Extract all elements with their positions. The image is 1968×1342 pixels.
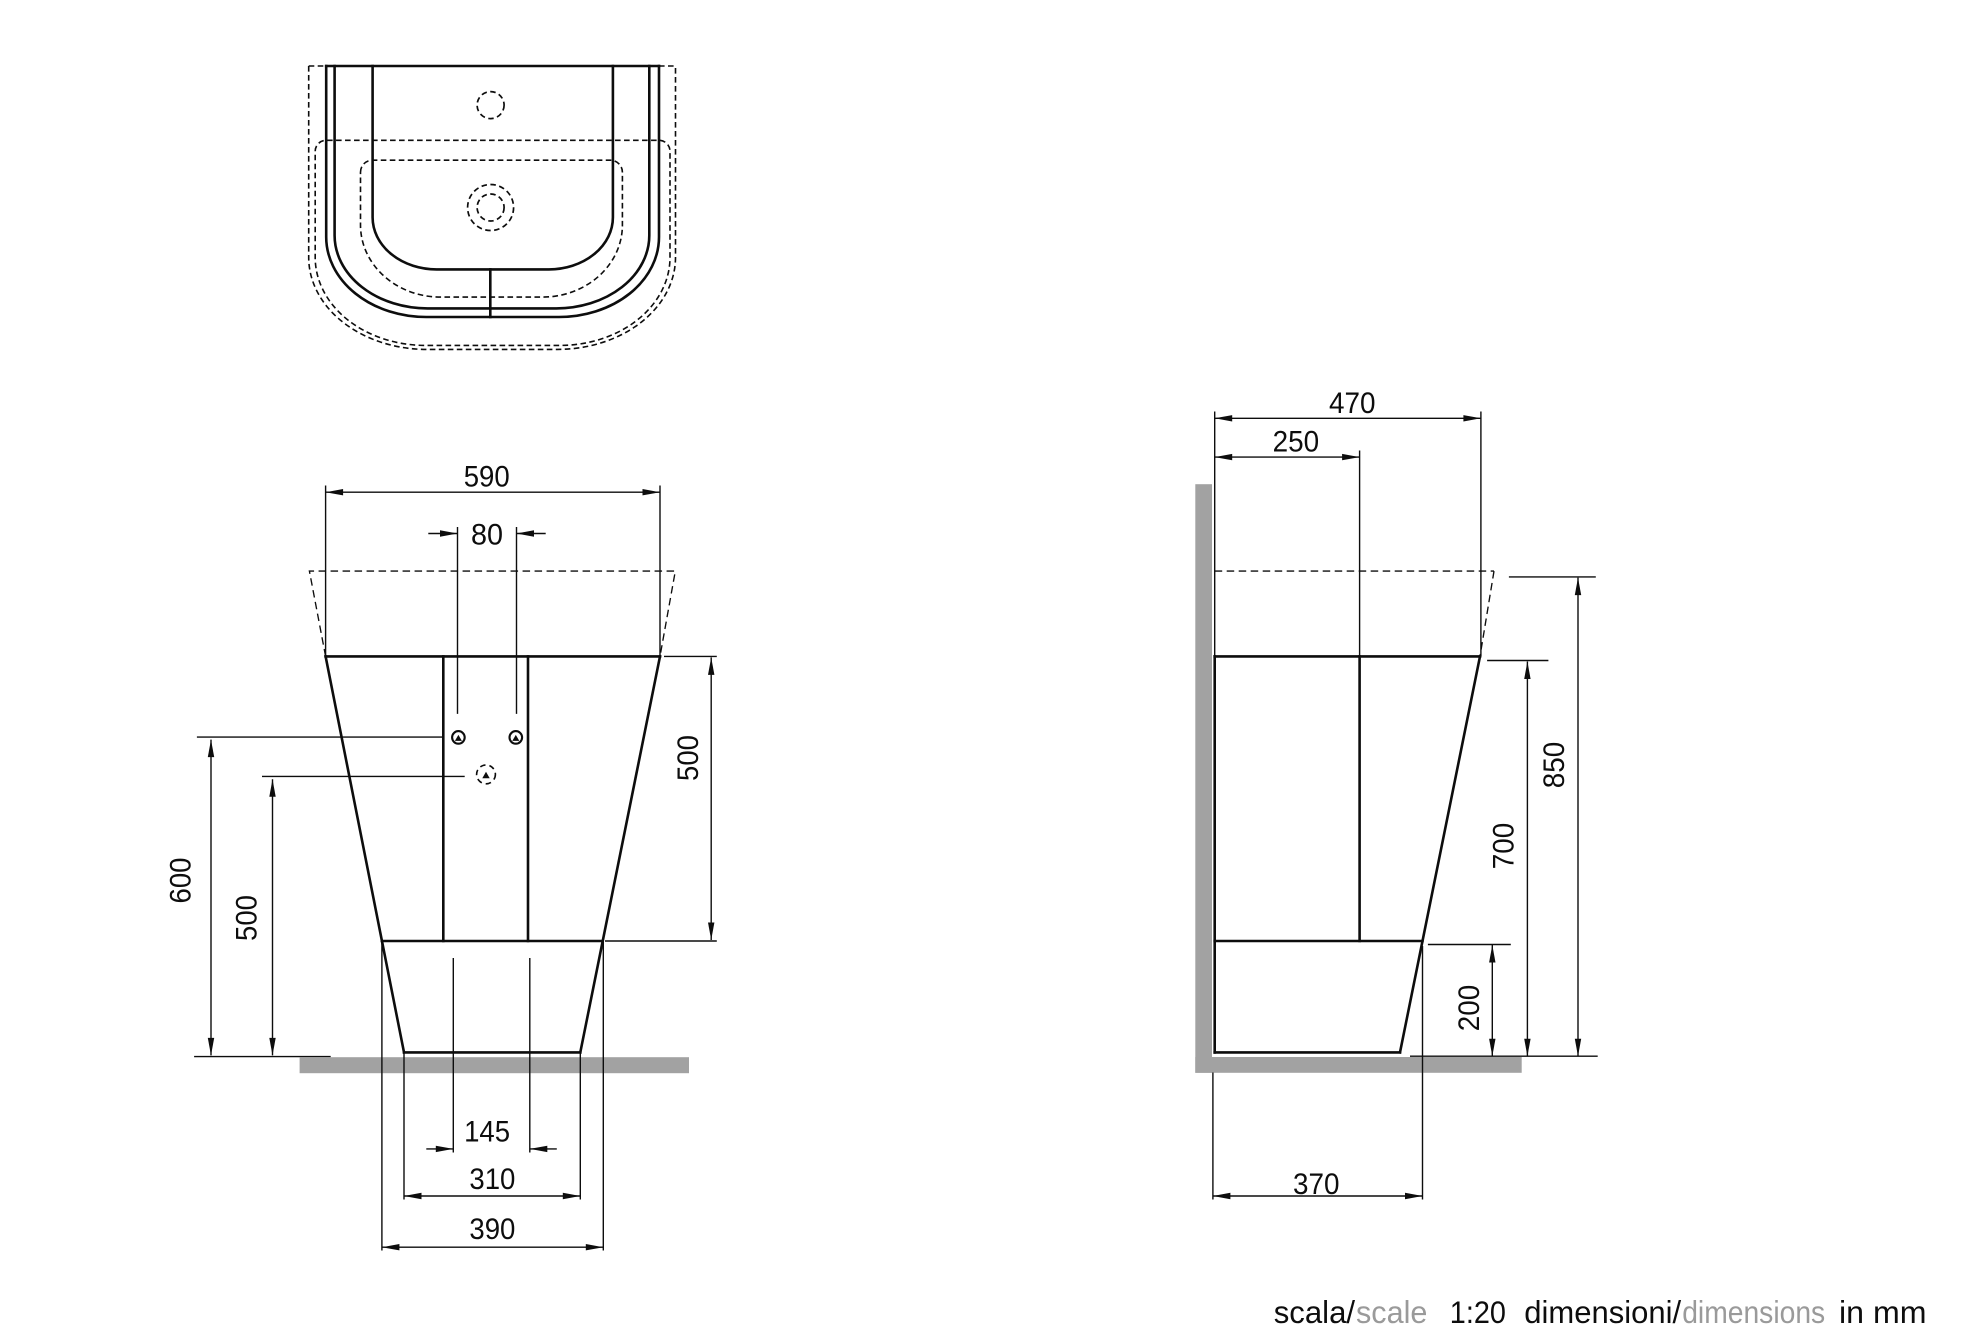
svg-text:310: 310 (469, 1163, 515, 1196)
svg-text:dimensioni/: dimensioni/ (1524, 1294, 1681, 1330)
svg-text:700: 700 (1488, 823, 1521, 870)
svg-text:dimensions: dimensions (1682, 1294, 1825, 1330)
svg-text:250: 250 (1273, 426, 1320, 459)
svg-text:370: 370 (1293, 1168, 1340, 1201)
svg-text:500: 500 (230, 895, 263, 941)
svg-text:80: 80 (471, 519, 503, 552)
svg-text:scale: scale (1356, 1294, 1427, 1330)
svg-text:390: 390 (469, 1213, 515, 1246)
svg-text:600: 600 (165, 858, 198, 904)
svg-text:850: 850 (1538, 742, 1571, 789)
svg-text:200: 200 (1453, 985, 1486, 1032)
svg-text:470: 470 (1329, 387, 1376, 420)
svg-text:500: 500 (672, 735, 705, 781)
svg-text:scala/: scala/ (1274, 1294, 1356, 1330)
svg-text:590: 590 (464, 461, 510, 494)
svg-text:145: 145 (464, 1116, 510, 1149)
svg-text:1:20: 1:20 (1450, 1294, 1506, 1330)
svg-text:in mm: in mm (1839, 1294, 1927, 1330)
